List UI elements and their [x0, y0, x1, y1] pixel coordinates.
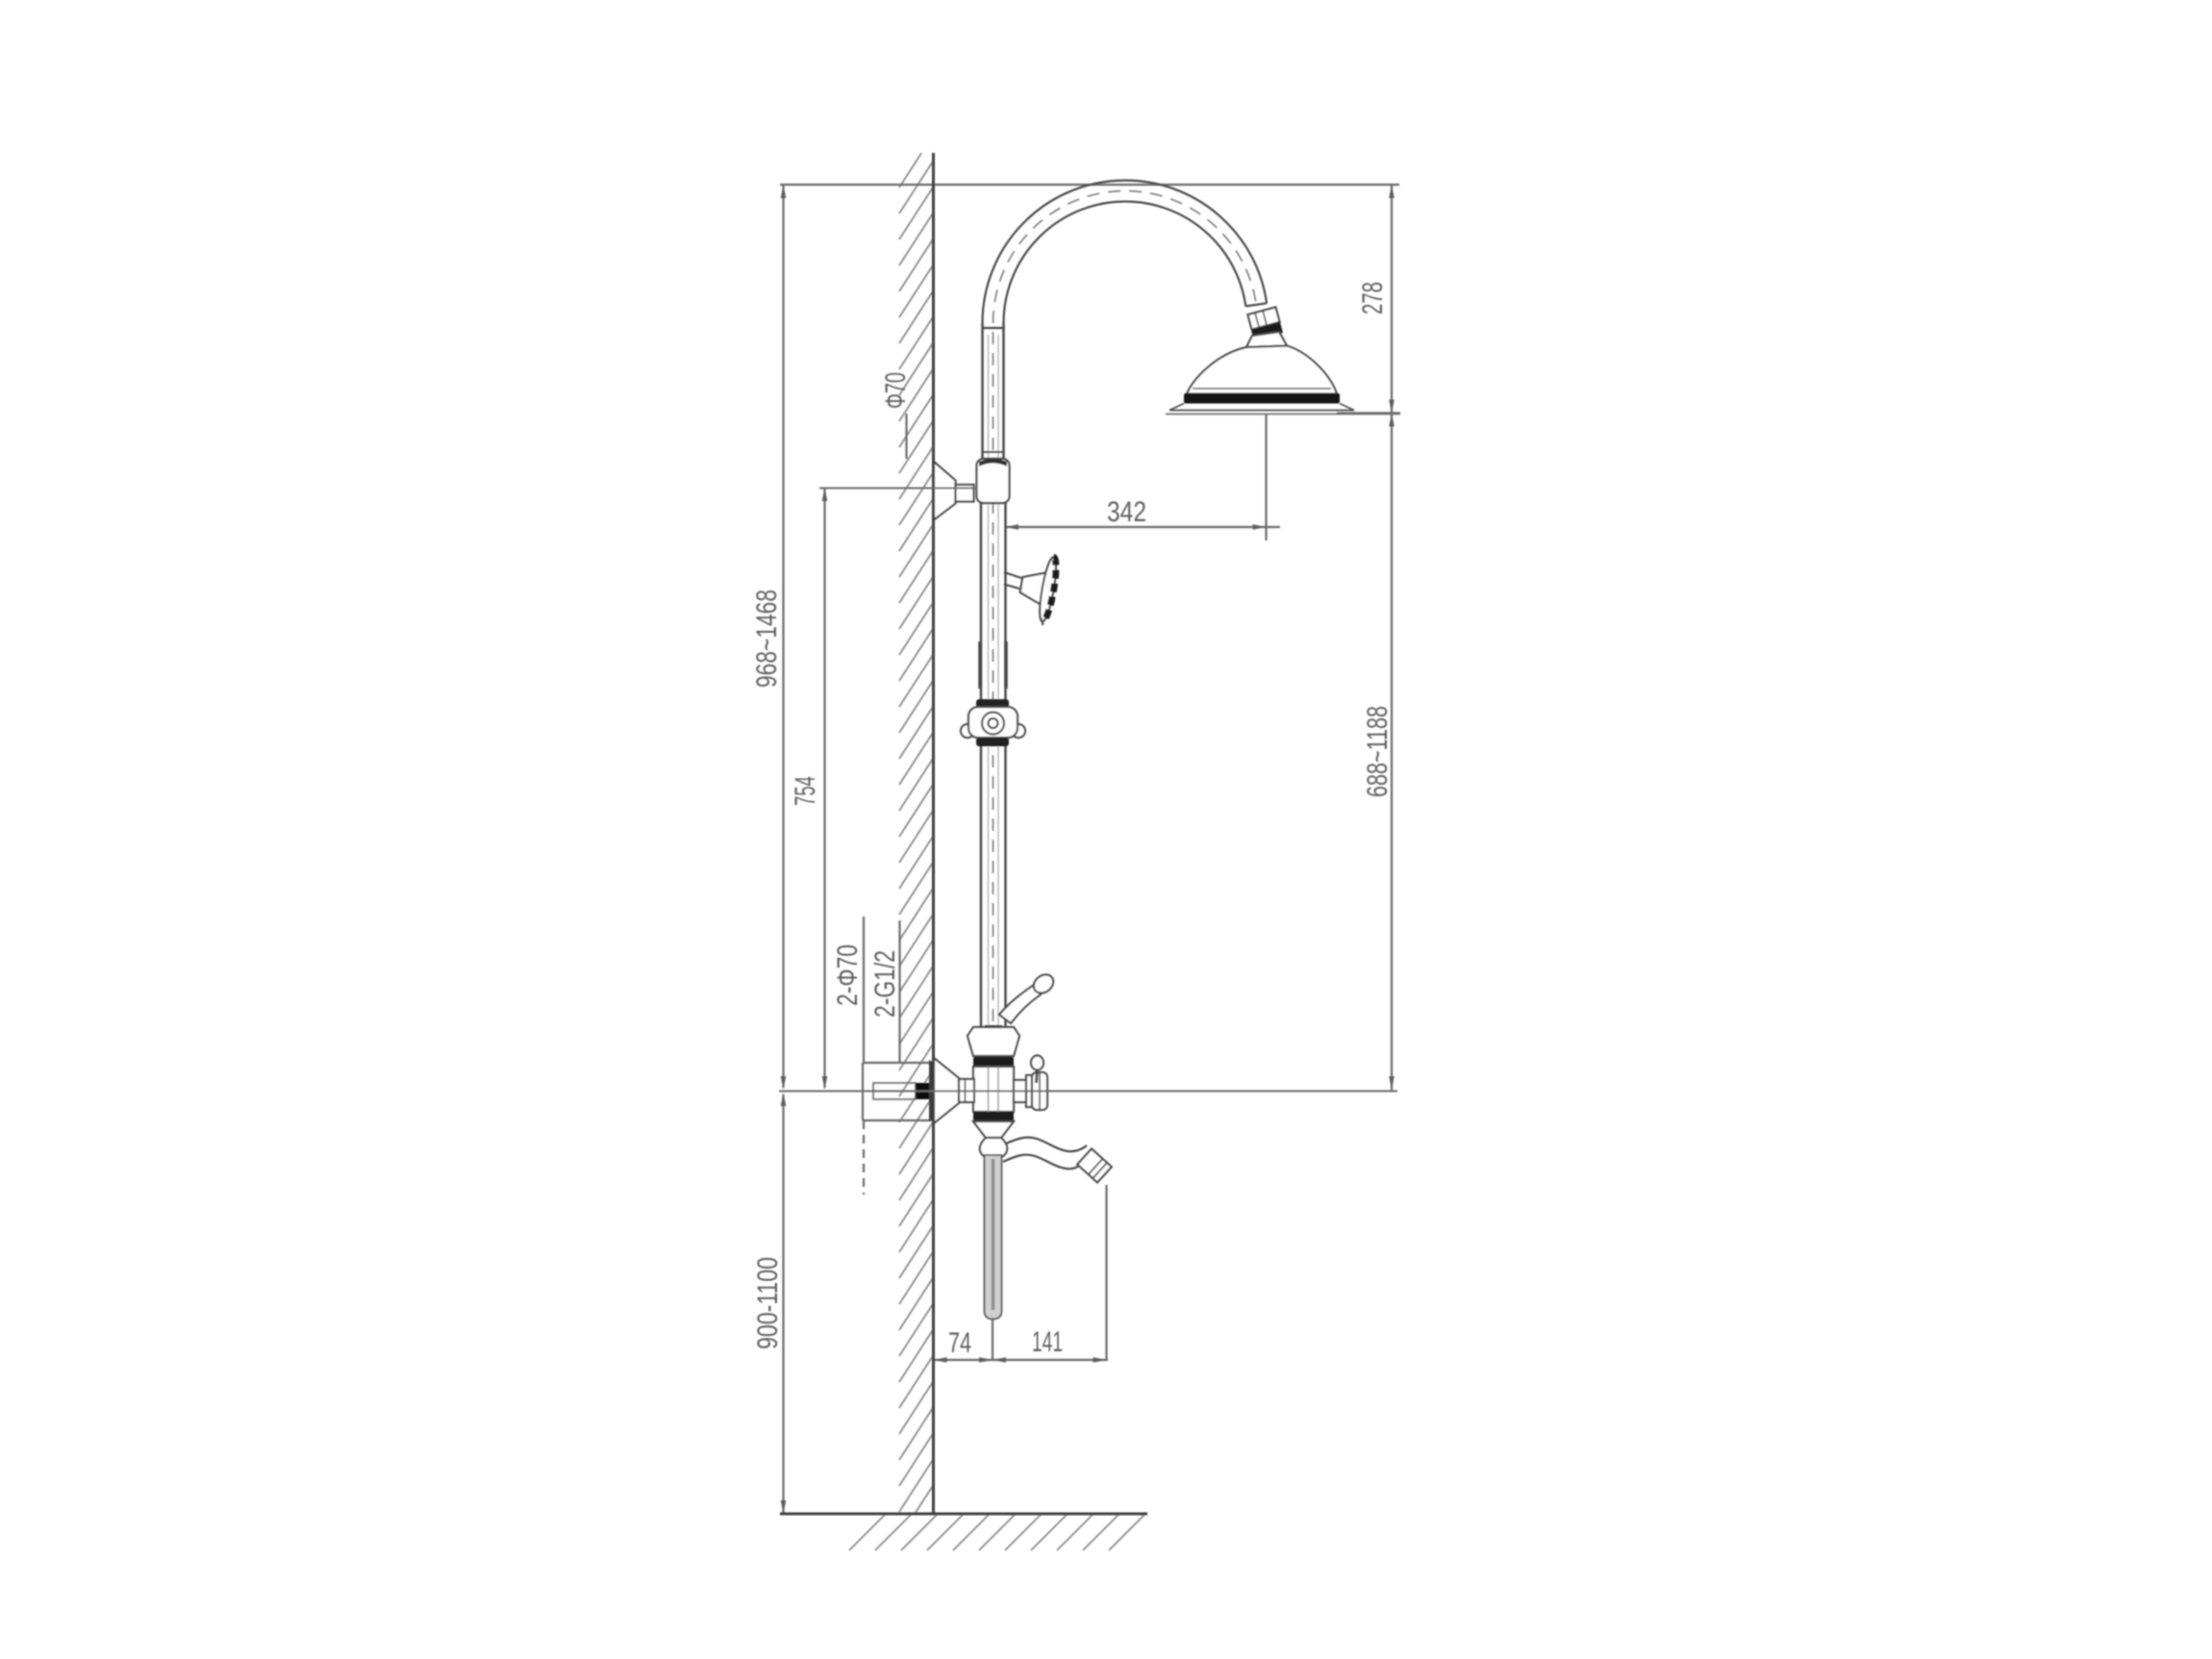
- svg-text:Φ70: Φ70: [880, 372, 912, 409]
- svg-text:278: 278: [1357, 282, 1389, 314]
- svg-text:2-Φ70: 2-Φ70: [832, 944, 864, 1006]
- svg-text:2-G1/2: 2-G1/2: [869, 950, 901, 1018]
- svg-text:968~1468: 968~1468: [751, 590, 783, 688]
- svg-text:900-1100: 900-1100: [752, 1257, 784, 1349]
- svg-text:74: 74: [948, 1327, 971, 1359]
- svg-text:141: 141: [1032, 1326, 1063, 1358]
- svg-text:688~1188: 688~1188: [1362, 706, 1394, 797]
- svg-text:754: 754: [790, 776, 821, 806]
- svg-text:342: 342: [1107, 496, 1146, 528]
